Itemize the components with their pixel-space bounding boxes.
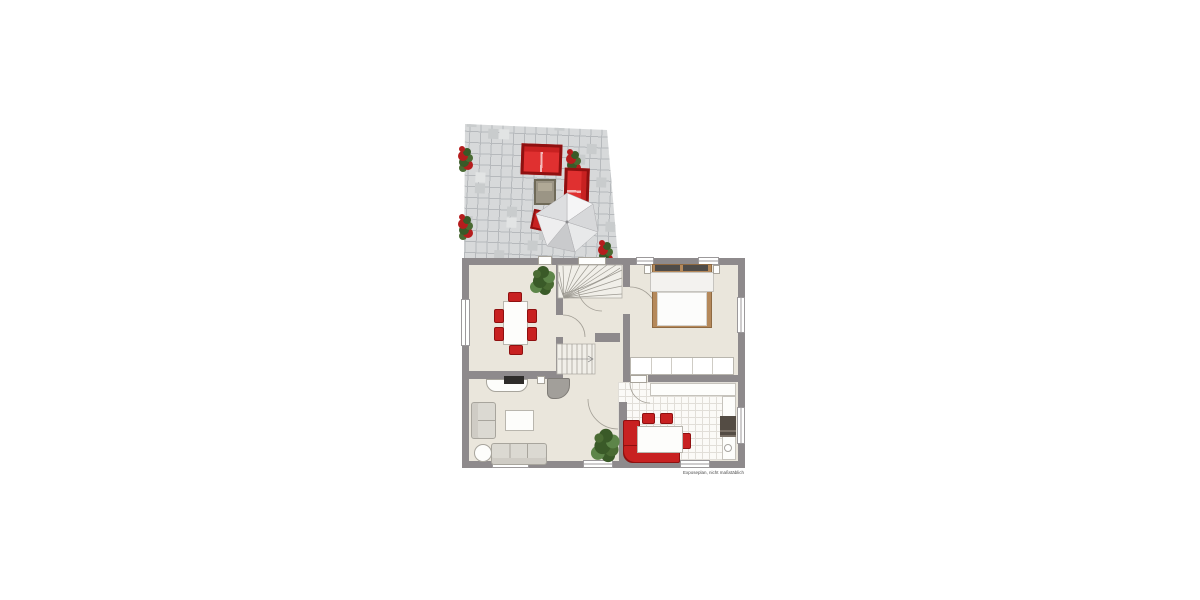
dining-chair	[494, 327, 504, 341]
headboard-cushion	[683, 265, 708, 271]
kitchen-counter-top	[650, 383, 736, 396]
floorplan-canvas: Exposeplan, nicht maßstäblich	[0, 0, 1200, 600]
nightstand	[713, 265, 720, 274]
kitchen-chair	[660, 413, 673, 424]
living-sofa	[491, 443, 547, 465]
kitchen-sink-fixture	[724, 444, 732, 452]
bed-pillows	[650, 272, 714, 292]
nightstand	[644, 265, 651, 274]
dining-chair	[509, 345, 523, 355]
wardrobe-segment	[631, 358, 652, 374]
tv	[504, 376, 524, 384]
dining-table	[503, 301, 528, 345]
dining-chair	[527, 309, 537, 323]
chaise-armchair	[471, 402, 496, 439]
dining-chair	[494, 309, 504, 323]
living-plant	[594, 433, 603, 442]
wardrobe-segment	[652, 358, 673, 374]
door-arc-kitchen	[630, 383, 650, 403]
coffee-table	[505, 410, 534, 431]
bed	[652, 264, 712, 328]
dining-chair	[527, 327, 537, 341]
bed-duvet	[657, 292, 707, 326]
wardrobe	[630, 357, 734, 375]
door-arc-dining	[563, 315, 585, 337]
kitchen-table	[637, 426, 683, 453]
dining-plant	[533, 270, 541, 278]
wardrobe-segment	[713, 358, 733, 374]
wall-speaker	[537, 376, 545, 384]
stairs-svg	[0, 0, 1200, 600]
headboard-cushion	[655, 265, 680, 271]
round-side-table	[474, 444, 492, 462]
door-arc-living	[588, 399, 618, 429]
wardrobe-segment	[693, 358, 714, 374]
stove	[720, 416, 736, 437]
wardrobe-segment	[672, 358, 693, 374]
kitchen-chair	[642, 413, 655, 424]
dining-chair	[508, 292, 522, 302]
footer-disclaimer: Exposeplan, nicht maßstäblich	[683, 470, 744, 476]
